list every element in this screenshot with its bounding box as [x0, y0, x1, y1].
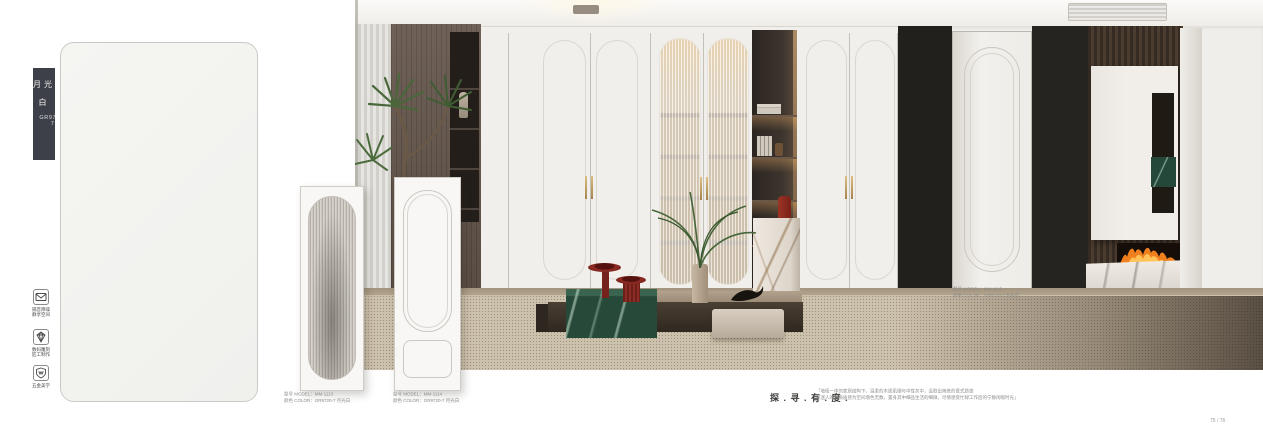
color-name: 月光白 — [33, 80, 55, 107]
red-side-table-top — [588, 263, 621, 272]
page-number: 75 / 76 — [1210, 418, 1225, 424]
green-marble-slab — [1151, 157, 1176, 187]
feature-hardware: 五金美学 — [24, 365, 58, 381]
shield-icon — [33, 365, 49, 381]
beige-vase — [692, 264, 708, 303]
feature-label-line: 静享空间 — [24, 312, 58, 317]
feature-label: 数码雕刻 匠工制作 — [24, 347, 58, 357]
red-vase — [778, 196, 791, 220]
door-molding-inner — [407, 194, 448, 328]
door-gap — [508, 33, 509, 290]
door-handle — [851, 176, 853, 199]
door-molding — [543, 40, 586, 280]
description-line: 以迷人的材质质感为空间增色无数，置身其中细品生活的细微，尽情感受忙碌工作后的宁静… — [816, 395, 1019, 402]
photo-product-caption: 型号 MODEL：MM-1115 颜色 COLOR：GR9720-7 月光白 — [953, 286, 1019, 299]
curved-wood-column — [1200, 10, 1263, 312]
envelope-icon — [33, 289, 49, 305]
product-color: 颜色 COLOR：GR9720-7 月光白 — [953, 293, 1019, 300]
feature-soundproof: 隔音降噪 静享空间 — [24, 289, 58, 305]
color-swatch-panel — [60, 42, 258, 402]
red-side-table — [602, 270, 609, 298]
interior-photo: 型号 MODEL：MM-1115 颜色 COLOR：GR9720-7 月光白 — [355, 0, 1263, 370]
shelf-glow — [752, 117, 797, 131]
door-handle — [591, 176, 593, 199]
door-molding — [855, 40, 895, 280]
air-vent — [1068, 3, 1167, 21]
door-molding — [596, 40, 638, 280]
door-panel-mm-1114 — [394, 177, 461, 391]
diamond-icon — [33, 329, 49, 345]
fluted-glass-insert — [308, 196, 356, 380]
black-wall-panel — [1032, 26, 1088, 293]
red-side-table-top — [616, 276, 646, 284]
product-color: 颜色 COLOR：GR9720-7 月光白 — [284, 398, 350, 405]
cabinet-niche — [1152, 93, 1174, 213]
fern-plant — [638, 188, 768, 268]
door-molding-inner — [970, 53, 1014, 266]
green-marble-table — [566, 289, 657, 338]
product-caption-1: 型号 MODEL：MM-1113 颜色 COLOR：GR9720-7 月光白 — [284, 391, 350, 404]
feature-label: 五金美学 — [24, 383, 58, 388]
door-molding — [806, 40, 847, 280]
feature-label-line: 五金美学 — [24, 383, 58, 388]
description: 「墙柜一体的家居结构下，温柔的木质肌理与中性灰中，汲取出简练的意式质感 以迷人的… — [816, 388, 1019, 401]
door-handle — [585, 176, 587, 199]
feature-label: 隔音降噪 静享空间 — [24, 307, 58, 317]
door-handle — [845, 176, 847, 199]
door-molding-outer — [964, 47, 1020, 272]
white-edge-panel — [1180, 28, 1202, 305]
door-bottom-panel — [403, 340, 452, 378]
feature-label-line: 匠工制作 — [24, 352, 58, 357]
red-side-table — [623, 282, 640, 302]
color-label-strip: 月光白 GR9720-7 — [33, 68, 55, 160]
fireplace-cabinet — [1091, 66, 1178, 240]
door-gap — [590, 33, 591, 290]
bird-sculpture — [729, 283, 766, 304]
door-molding-outer — [403, 190, 452, 332]
catalog-page: 月光白 GR9720-7 隔音降噪 静享空间 数码雕刻 匠工制作 五金美学 — [0, 0, 1263, 444]
product-color: 颜色 COLOR：GR9720-7 月光白 — [393, 398, 459, 405]
black-wall-panel — [898, 26, 952, 293]
ottoman — [712, 309, 784, 338]
ceiling-recess — [573, 5, 599, 14]
product-caption-2: 型号 MODEL：MM-1114 颜色 COLOR：GR9720-7 月光白 — [393, 391, 459, 404]
books — [757, 104, 781, 114]
door-panel-mm-1113 — [300, 186, 364, 391]
books — [757, 136, 772, 156]
floor-shadow — [895, 296, 1263, 370]
shelf-glow — [752, 159, 797, 173]
feature-carving: 数码雕刻 匠工制作 — [24, 329, 58, 345]
jar — [775, 143, 783, 156]
door-gap — [849, 33, 850, 290]
door-mm-1115 — [952, 31, 1032, 290]
